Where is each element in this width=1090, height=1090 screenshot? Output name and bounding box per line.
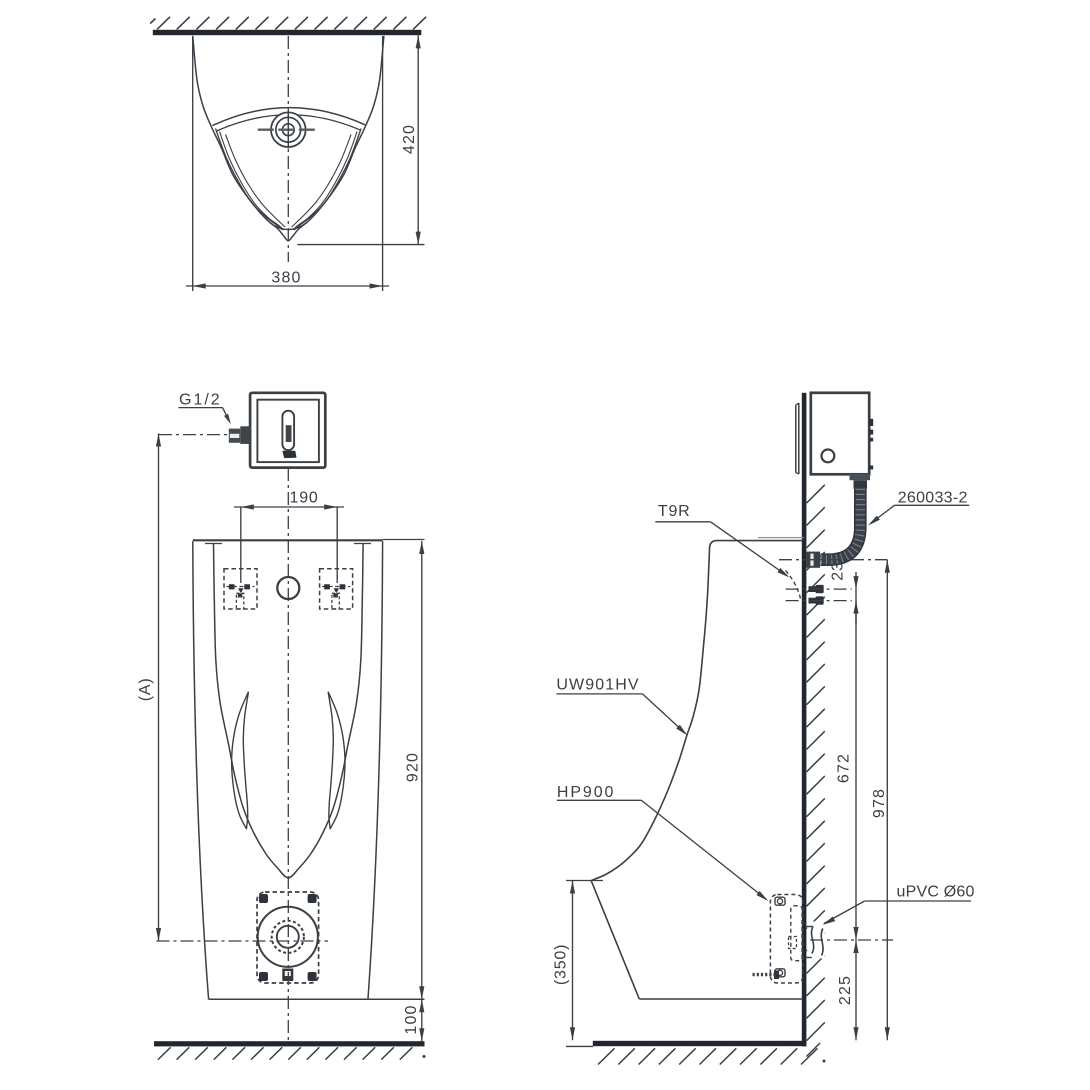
svg-text:23: 23 [830, 561, 847, 580]
svg-text:(A): (A) [137, 678, 154, 702]
svg-text:380: 380 [271, 270, 301, 287]
svg-text:190: 190 [290, 490, 319, 507]
svg-text:260033-2: 260033-2 [898, 490, 968, 507]
svg-text:UW901HV: UW901HV [556, 677, 639, 694]
svg-text:420: 420 [401, 124, 418, 154]
svg-text:100: 100 [403, 1004, 420, 1034]
svg-text:672: 672 [836, 753, 853, 783]
svg-text:225: 225 [837, 975, 854, 1005]
svg-text:978: 978 [871, 788, 888, 818]
svg-text:(350): (350) [553, 944, 570, 985]
svg-text:920: 920 [405, 752, 422, 782]
svg-text:G1/2: G1/2 [179, 392, 222, 409]
svg-text:T9R: T9R [658, 503, 691, 520]
svg-text:uPVC Ø60: uPVC Ø60 [897, 884, 975, 901]
svg-text:HP900: HP900 [557, 784, 615, 801]
